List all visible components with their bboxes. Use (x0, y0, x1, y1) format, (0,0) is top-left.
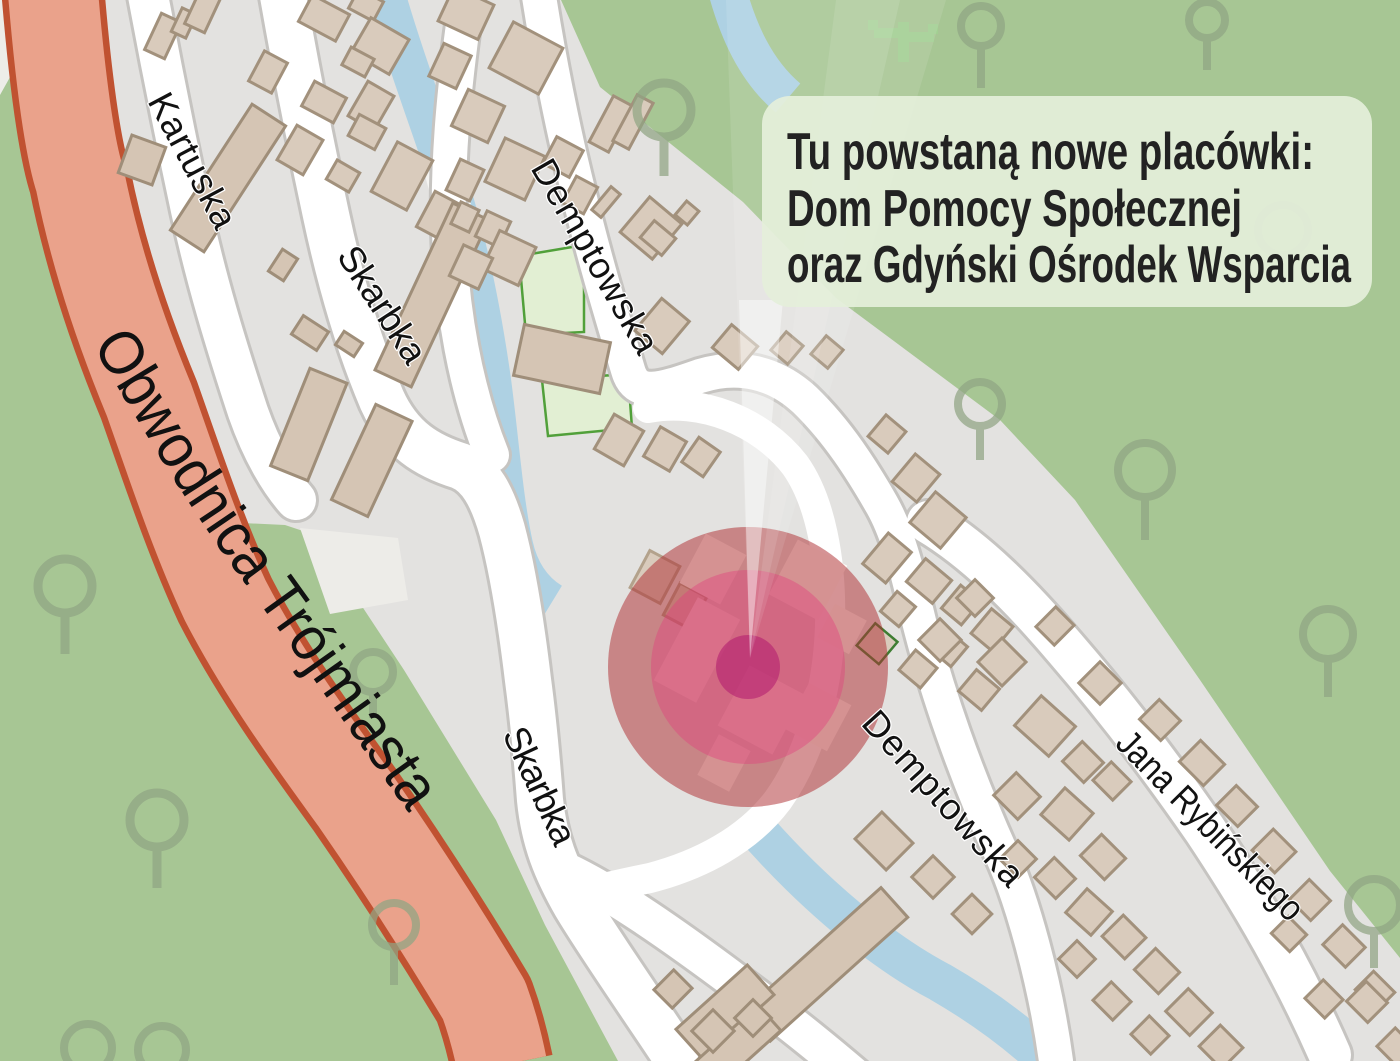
svg-text:Dom Pomocy Społecznej: Dom Pomocy Społecznej (787, 180, 1242, 238)
svg-text:Tu powstaną nowe placówki:: Tu powstaną nowe placówki: (787, 123, 1314, 181)
svg-text:oraz Gdyński Ośrodek Wsparcia: oraz Gdyński Ośrodek Wsparcia (787, 236, 1352, 294)
